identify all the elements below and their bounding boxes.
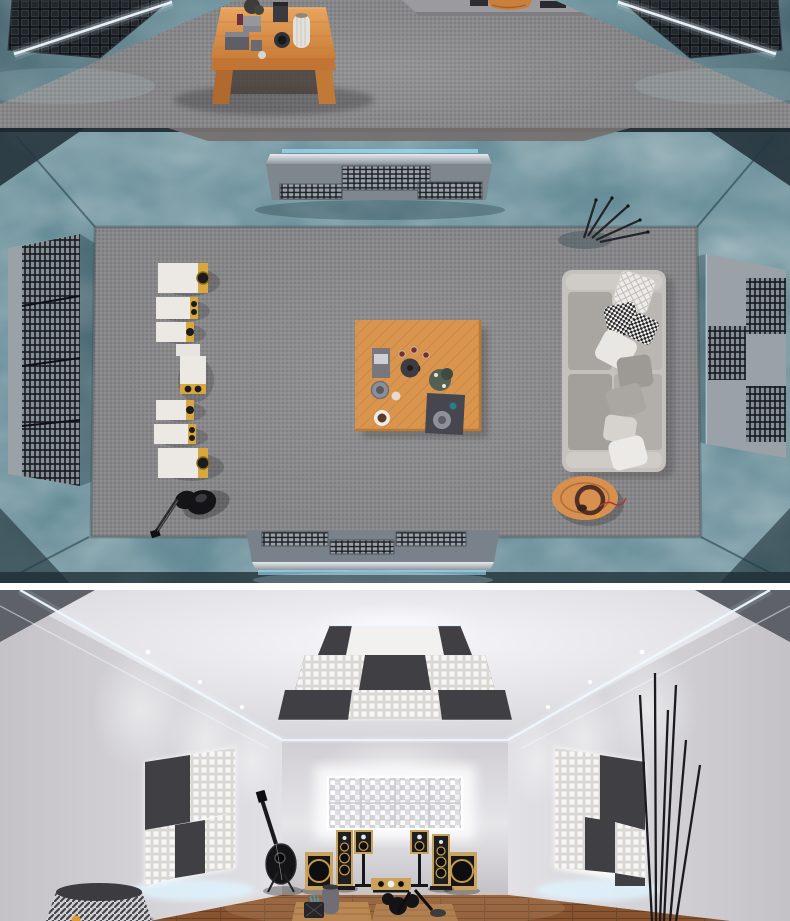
- top-wall-grille-console: [255, 149, 505, 220]
- render-perspective: [0, 590, 790, 921]
- center-channel-speaker: [371, 878, 411, 893]
- floor-lamp: [46, 883, 154, 921]
- right-wall-grille-panel: [690, 254, 786, 458]
- gray-sofa: [562, 269, 674, 478]
- bottom-wall-grille-console: [246, 530, 500, 583]
- left-wall-grille-panel: [8, 234, 96, 486]
- panel-divider: [0, 583, 790, 590]
- wooden-coffee-table: [355, 320, 488, 438]
- render-composite: [0, 0, 790, 921]
- render-closeup: [0, 0, 790, 128]
- back-wall-diffuser: [315, 766, 475, 840]
- render-top-down: [0, 128, 790, 583]
